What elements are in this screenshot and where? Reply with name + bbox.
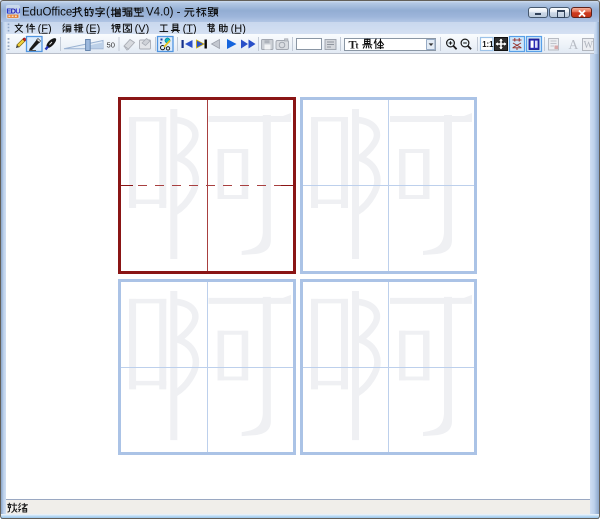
svg-text:(: ( (106, 7, 110, 19)
svg-text:(H): (H) (231, 23, 246, 34)
svg-text:(E): (E) (86, 23, 101, 34)
svg-text:1:1: 1:1 (482, 40, 494, 49)
svg-text:W: W (584, 40, 594, 51)
svg-text:EduOffice: EduOffice (22, 7, 72, 19)
svg-text:A: A (569, 37, 579, 52)
svg-text:V4.0) -: V4.0) - (146, 7, 181, 19)
svg-text:(F): (F) (38, 23, 52, 34)
svg-text:(V): (V) (135, 23, 150, 34)
svg-text:t: t (356, 41, 359, 51)
svg-text:(T): (T) (183, 23, 197, 34)
svg-text:50: 50 (107, 41, 115, 50)
